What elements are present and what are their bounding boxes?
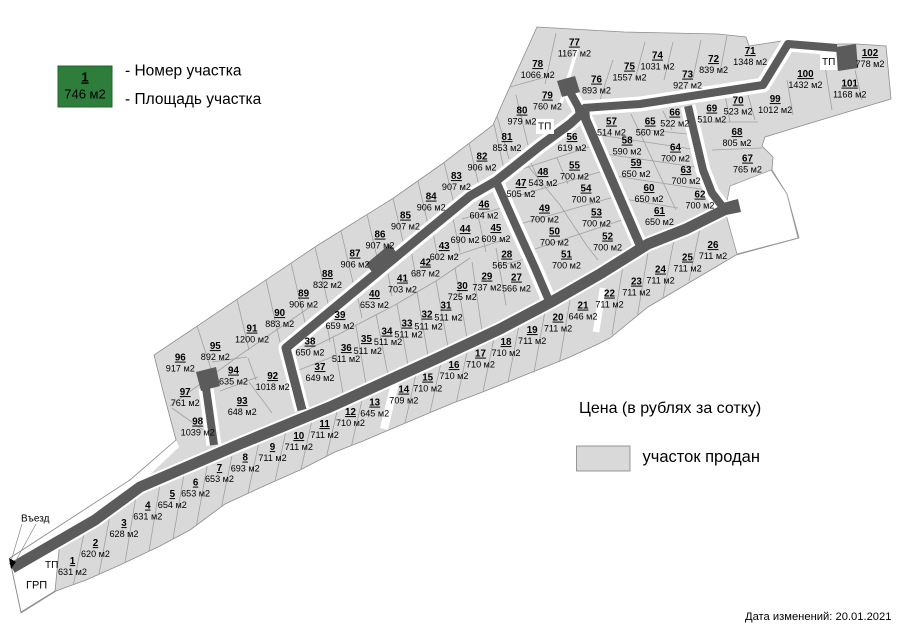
svg-text:66: 66 bbox=[669, 108, 680, 119]
svg-text:631 м2: 631 м2 bbox=[58, 567, 87, 577]
svg-text:102: 102 bbox=[862, 48, 879, 59]
svg-text:ТП: ТП bbox=[538, 122, 551, 133]
svg-text:97: 97 bbox=[180, 387, 191, 398]
svg-text:700 м2: 700 м2 bbox=[530, 214, 559, 224]
svg-text:40: 40 bbox=[369, 289, 380, 300]
svg-text:765 м2: 765 м2 bbox=[733, 164, 762, 174]
svg-text:1: 1 bbox=[70, 556, 76, 567]
svg-text:979 м2: 979 м2 bbox=[507, 116, 536, 126]
svg-text:654 м2: 654 м2 bbox=[158, 500, 187, 510]
svg-text:49: 49 bbox=[539, 204, 550, 215]
svg-text:650 м2: 650 м2 bbox=[295, 347, 324, 357]
svg-text:50: 50 bbox=[549, 227, 560, 238]
svg-text:778 м2: 778 м2 bbox=[855, 59, 884, 69]
svg-text:28: 28 bbox=[501, 250, 512, 261]
svg-text:77: 77 bbox=[569, 38, 580, 49]
svg-text:1018 м2: 1018 м2 bbox=[256, 382, 290, 392]
svg-text:26: 26 bbox=[708, 240, 719, 251]
svg-text:53: 53 bbox=[591, 208, 602, 219]
svg-text:31: 31 bbox=[441, 301, 452, 312]
svg-text:57: 57 bbox=[606, 117, 617, 128]
svg-text:87: 87 bbox=[350, 249, 361, 260]
svg-text:725 м2: 725 м2 bbox=[448, 292, 477, 302]
svg-text:79: 79 bbox=[542, 91, 553, 102]
svg-text:907 м2: 907 м2 bbox=[442, 182, 471, 192]
svg-text:69: 69 bbox=[706, 104, 717, 115]
svg-text:8: 8 bbox=[242, 453, 248, 464]
svg-text:710 м2: 710 м2 bbox=[466, 359, 495, 369]
svg-text:59: 59 bbox=[631, 158, 642, 169]
svg-text:635 м2: 635 м2 bbox=[219, 376, 248, 386]
svg-text:700 м2: 700 м2 bbox=[540, 237, 569, 247]
svg-text:711 м2: 711 м2 bbox=[518, 336, 546, 346]
svg-text:690 м2: 690 м2 bbox=[451, 235, 480, 245]
svg-text:100: 100 bbox=[797, 69, 814, 80]
svg-text:649 м2: 649 м2 bbox=[305, 373, 334, 383]
svg-text:711 м2: 711 м2 bbox=[544, 323, 572, 333]
svg-text:893 м2: 893 м2 bbox=[582, 85, 611, 95]
svg-text:17: 17 bbox=[475, 349, 486, 360]
svg-text:15: 15 bbox=[422, 373, 433, 384]
svg-text:1557 м2: 1557 м2 bbox=[612, 72, 646, 82]
svg-text:700 м2: 700 м2 bbox=[671, 176, 700, 186]
svg-text:62: 62 bbox=[695, 190, 706, 201]
svg-text:ТП: ТП bbox=[45, 560, 58, 571]
svg-text:711 м2: 711 м2 bbox=[699, 251, 727, 261]
svg-text:907 м2: 907 м2 bbox=[365, 240, 394, 250]
svg-text:917 м2: 917 м2 bbox=[166, 363, 195, 373]
svg-text:63: 63 bbox=[681, 165, 692, 176]
svg-text:89: 89 bbox=[298, 289, 309, 300]
svg-text:32: 32 bbox=[422, 310, 433, 321]
svg-text:45: 45 bbox=[490, 223, 501, 234]
svg-text:72: 72 bbox=[708, 54, 719, 65]
svg-text:7: 7 bbox=[217, 463, 223, 474]
svg-text:60: 60 bbox=[644, 183, 655, 194]
svg-text:710 м2: 710 м2 bbox=[413, 383, 442, 393]
svg-text:14: 14 bbox=[398, 385, 409, 396]
svg-text:659 м2: 659 м2 bbox=[325, 321, 354, 331]
svg-text:737 м2: 737 м2 bbox=[472, 282, 501, 292]
svg-text:511 м2: 511 м2 bbox=[332, 354, 360, 364]
svg-text:1168 м2: 1168 м2 bbox=[833, 89, 866, 99]
svg-text:650 м2: 650 м2 bbox=[634, 194, 663, 204]
svg-text:91: 91 bbox=[247, 324, 258, 335]
svg-text:101: 101 bbox=[842, 79, 859, 90]
svg-text:80: 80 bbox=[517, 106, 528, 117]
svg-text:628 м2: 628 м2 bbox=[109, 529, 138, 539]
svg-text:1200 м2: 1200 м2 bbox=[235, 334, 269, 344]
svg-text:1432 м2: 1432 м2 bbox=[788, 80, 822, 90]
svg-text:13: 13 bbox=[369, 398, 380, 409]
svg-text:839 м2: 839 м2 bbox=[699, 65, 728, 75]
svg-text:710 м2: 710 м2 bbox=[439, 371, 468, 381]
svg-text:653 м2: 653 м2 bbox=[205, 474, 234, 484]
svg-text:1348 м2: 1348 м2 bbox=[733, 57, 767, 67]
svg-text:906 м2: 906 м2 bbox=[289, 299, 318, 309]
svg-text:участок продан: участок продан bbox=[643, 448, 760, 466]
svg-text:95: 95 bbox=[210, 341, 221, 352]
svg-text:710 м2: 710 м2 bbox=[336, 418, 365, 428]
svg-text:37: 37 bbox=[315, 362, 326, 373]
svg-text:46: 46 bbox=[479, 200, 490, 211]
svg-text:604 м2: 604 м2 bbox=[469, 210, 498, 220]
svg-text:711 м2: 711 м2 bbox=[285, 442, 313, 452]
svg-text:81: 81 bbox=[502, 132, 513, 143]
svg-text:10: 10 bbox=[293, 431, 304, 442]
svg-text:ТП: ТП bbox=[822, 57, 835, 68]
svg-text:84: 84 bbox=[426, 192, 437, 203]
svg-text:906 м2: 906 м2 bbox=[467, 162, 496, 172]
svg-text:711 м2: 711 м2 bbox=[258, 453, 286, 463]
svg-text:6: 6 bbox=[193, 478, 199, 489]
svg-text:653 м2: 653 м2 bbox=[360, 300, 389, 310]
svg-text:61: 61 bbox=[654, 206, 665, 217]
svg-text:82: 82 bbox=[477, 152, 488, 163]
svg-text:47: 47 bbox=[516, 178, 527, 189]
svg-text:73: 73 bbox=[682, 70, 693, 81]
svg-text:Дата изменений: 20.01.2021: Дата изменений: 20.01.2021 bbox=[745, 611, 891, 623]
svg-text:832 м2: 832 м2 bbox=[313, 280, 342, 290]
svg-text:90: 90 bbox=[274, 308, 285, 319]
svg-text:64: 64 bbox=[670, 143, 681, 154]
svg-text:21: 21 bbox=[578, 301, 589, 312]
svg-text:619 м2: 619 м2 bbox=[557, 143, 586, 153]
svg-text:703 м2: 703 м2 bbox=[388, 284, 417, 294]
svg-text:27: 27 bbox=[511, 273, 522, 284]
svg-text:710 м2: 710 м2 bbox=[491, 348, 520, 358]
svg-text:94: 94 bbox=[228, 366, 239, 377]
svg-text:92: 92 bbox=[267, 371, 278, 382]
svg-text:24: 24 bbox=[655, 265, 666, 276]
svg-text:761 м2: 761 м2 bbox=[171, 398, 200, 408]
svg-text:48: 48 bbox=[537, 167, 548, 178]
svg-text:78: 78 bbox=[532, 59, 543, 70]
svg-text:43: 43 bbox=[439, 241, 450, 252]
svg-text:30: 30 bbox=[457, 281, 468, 292]
svg-text:560 м2: 560 м2 bbox=[636, 127, 665, 137]
svg-text:700 м2: 700 м2 bbox=[560, 171, 589, 181]
svg-text:74: 74 bbox=[652, 51, 663, 62]
svg-text:1012 м2: 1012 м2 bbox=[758, 105, 792, 115]
svg-text:- Номер участка: - Номер участка bbox=[125, 63, 242, 80]
svg-text:631 м2: 631 м2 bbox=[133, 511, 162, 521]
svg-text:510 м2: 510 м2 bbox=[697, 114, 726, 124]
svg-text:650 м2: 650 м2 bbox=[622, 169, 651, 179]
svg-text:906 м2: 906 м2 bbox=[417, 202, 446, 212]
svg-text:711 м2: 711 м2 bbox=[595, 299, 623, 309]
svg-text:711 м2: 711 м2 bbox=[310, 430, 338, 440]
svg-text:2: 2 bbox=[93, 538, 99, 549]
svg-text:609 м2: 609 м2 bbox=[481, 234, 510, 244]
svg-text:700 м2: 700 м2 bbox=[571, 194, 600, 204]
svg-text:700 м2: 700 м2 bbox=[552, 260, 581, 270]
svg-text:55: 55 bbox=[569, 161, 580, 172]
svg-text:85: 85 bbox=[400, 211, 411, 222]
svg-text:700 м2: 700 м2 bbox=[593, 242, 622, 252]
svg-text:1: 1 bbox=[81, 69, 88, 84]
svg-text:76: 76 bbox=[591, 75, 602, 86]
svg-text:29: 29 bbox=[481, 272, 492, 283]
svg-text:- Площадь участка: - Площадь участка bbox=[125, 91, 262, 108]
svg-text:68: 68 bbox=[732, 127, 743, 138]
svg-text:711 м2: 711 м2 bbox=[673, 263, 701, 273]
svg-text:505 м2: 505 м2 bbox=[506, 189, 535, 199]
svg-text:23: 23 bbox=[631, 277, 642, 288]
svg-text:19: 19 bbox=[527, 325, 538, 336]
svg-text:51: 51 bbox=[561, 250, 572, 261]
svg-text:9: 9 bbox=[270, 442, 276, 453]
svg-text:566 м2: 566 м2 bbox=[502, 283, 531, 293]
svg-text:700 м2: 700 м2 bbox=[582, 218, 611, 228]
svg-text:602 м2: 602 м2 bbox=[430, 252, 459, 262]
svg-text:52: 52 bbox=[602, 232, 613, 243]
svg-text:760 м2: 760 м2 bbox=[533, 101, 562, 111]
svg-text:746 м2: 746 м2 bbox=[64, 86, 105, 101]
svg-text:3: 3 bbox=[121, 518, 127, 529]
svg-text:20: 20 bbox=[553, 313, 564, 324]
svg-text:1167 м2: 1167 м2 bbox=[558, 48, 591, 58]
svg-text:522 м2: 522 м2 bbox=[660, 118, 689, 128]
svg-text:88: 88 bbox=[322, 269, 333, 280]
svg-text:39: 39 bbox=[335, 310, 346, 321]
svg-text:36: 36 bbox=[341, 343, 352, 354]
svg-text:56: 56 bbox=[567, 132, 578, 143]
svg-text:38: 38 bbox=[305, 337, 316, 348]
svg-text:892 м2: 892 м2 bbox=[201, 352, 230, 362]
svg-text:805 м2: 805 м2 bbox=[722, 138, 751, 148]
svg-text:98: 98 bbox=[192, 417, 203, 428]
svg-text:1031 м2: 1031 м2 bbox=[640, 61, 674, 71]
svg-text:70: 70 bbox=[733, 96, 744, 107]
svg-text:5: 5 bbox=[170, 489, 176, 500]
svg-text:646 м2: 646 м2 bbox=[568, 311, 597, 321]
svg-text:71: 71 bbox=[745, 46, 756, 57]
svg-text:Въезд: Въезд bbox=[21, 514, 50, 525]
svg-text:523 м2: 523 м2 bbox=[724, 106, 753, 116]
svg-text:16: 16 bbox=[449, 360, 460, 371]
svg-text:25: 25 bbox=[682, 253, 693, 264]
svg-text:1066 м2: 1066 м2 bbox=[521, 70, 555, 80]
svg-text:650 м2: 650 м2 bbox=[645, 217, 674, 227]
svg-text:67: 67 bbox=[742, 154, 753, 165]
svg-text:11: 11 bbox=[319, 419, 330, 430]
svg-text:711 м2: 711 м2 bbox=[646, 275, 674, 285]
svg-text:883 м2: 883 м2 bbox=[265, 319, 294, 329]
svg-text:653 м2: 653 м2 bbox=[181, 488, 210, 498]
svg-text:620 м2: 620 м2 bbox=[81, 549, 110, 559]
svg-text:33: 33 bbox=[402, 319, 413, 330]
svg-text:65: 65 bbox=[645, 117, 656, 128]
svg-text:58: 58 bbox=[622, 136, 633, 147]
svg-text:907 м2: 907 м2 bbox=[391, 221, 420, 231]
svg-text:86: 86 bbox=[375, 230, 386, 241]
svg-text:12: 12 bbox=[345, 407, 356, 418]
svg-text:700 м2: 700 м2 bbox=[661, 153, 690, 163]
svg-text:83: 83 bbox=[451, 171, 462, 182]
svg-text:645 м2: 645 м2 bbox=[360, 408, 389, 418]
svg-text:41: 41 bbox=[397, 274, 408, 285]
svg-text:648 м2: 648 м2 bbox=[228, 407, 257, 417]
svg-text:54: 54 bbox=[581, 184, 592, 195]
svg-text:927 м2: 927 м2 bbox=[673, 80, 702, 90]
svg-text:700 м2: 700 м2 bbox=[685, 200, 714, 210]
svg-text:687 м2: 687 м2 bbox=[411, 268, 440, 278]
svg-text:35: 35 bbox=[361, 334, 372, 345]
svg-text:906 м2: 906 м2 bbox=[340, 259, 369, 269]
svg-text:22: 22 bbox=[604, 289, 615, 300]
svg-text:693 м2: 693 м2 bbox=[231, 463, 260, 473]
svg-text:4: 4 bbox=[145, 501, 151, 512]
svg-text:709 м2: 709 м2 bbox=[389, 395, 418, 405]
svg-text:96: 96 bbox=[175, 353, 186, 364]
svg-text:99: 99 bbox=[770, 94, 781, 105]
svg-text:75: 75 bbox=[624, 62, 635, 73]
svg-text:543 м2: 543 м2 bbox=[528, 178, 557, 188]
svg-text:590 м2: 590 м2 bbox=[613, 146, 642, 156]
svg-text:853 м2: 853 м2 bbox=[492, 143, 521, 153]
svg-text:565 м2: 565 м2 bbox=[492, 260, 521, 270]
svg-text:93: 93 bbox=[237, 396, 248, 407]
svg-text:711 м2: 711 м2 bbox=[622, 287, 650, 297]
svg-text:ГРП: ГРП bbox=[26, 579, 47, 591]
svg-text:1039 м2: 1039 м2 bbox=[181, 427, 215, 437]
svg-text:44: 44 bbox=[460, 224, 471, 235]
svg-text:Цена (в рублях за сотку): Цена (в рублях за сотку) bbox=[579, 400, 761, 417]
svg-text:18: 18 bbox=[501, 337, 512, 348]
